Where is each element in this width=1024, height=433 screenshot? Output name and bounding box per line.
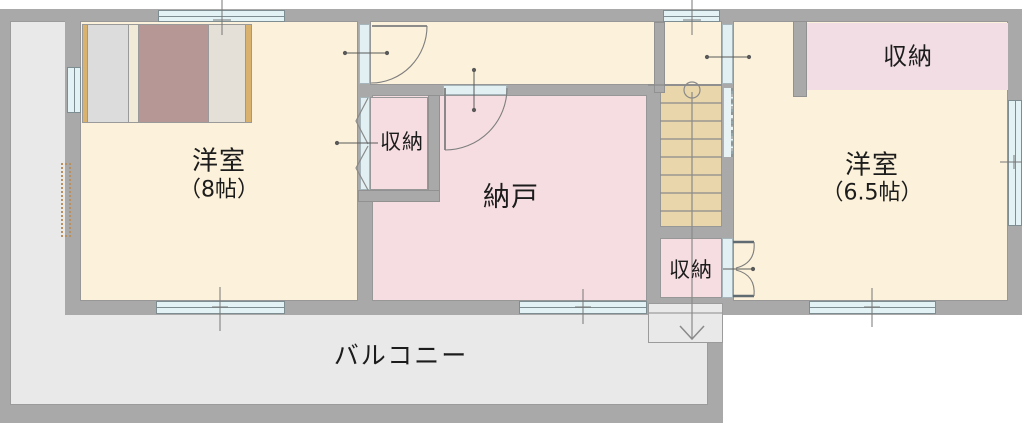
hallway-floor	[370, 21, 722, 85]
window-bottom-left	[156, 301, 285, 314]
bedroom-left-label: 洋室	[192, 147, 246, 176]
bed-foot-area	[208, 24, 246, 123]
bedroom-left-door-opening	[359, 24, 370, 84]
window-bottom-storeroom	[519, 301, 647, 314]
bedroom-right-size: （6.5帖）	[822, 182, 923, 207]
stairwell-rail-strip	[723, 88, 733, 157]
closet-right-wall-stub	[793, 21, 807, 97]
window-top-middle	[663, 10, 720, 22]
bedroom-left-size: （8帖）	[179, 179, 259, 204]
bedroom-right-door-opening	[722, 24, 733, 84]
storeroom-door-opening	[443, 85, 507, 95]
stairs-floor	[660, 85, 722, 227]
hallway-wall-stub	[654, 22, 665, 93]
bedroom-right-label: 洋室	[845, 151, 899, 180]
stair-landing-niche	[648, 303, 723, 343]
closet-left-door-opening	[360, 97, 370, 190]
bed-pillow-area	[87, 24, 129, 123]
closet-left-bottom-wall	[358, 190, 440, 202]
bed-frame-right	[245, 24, 252, 123]
closet-left-label: 収納	[380, 131, 424, 155]
closet-under-stairs-label: 収納	[669, 259, 713, 283]
closet-left-right-wall	[428, 95, 440, 202]
balcony-fixture-dotted	[61, 163, 71, 237]
window-top-left	[158, 10, 285, 22]
bed-blanket	[138, 24, 209, 123]
floor-plan: 洋室 （8帖） 収納 納戸 収納 洋室 （6.5帖） 収納 バルコニー	[0, 0, 1024, 433]
closet-under-stairs-door-opening	[722, 238, 733, 298]
window-right-wall	[1008, 100, 1022, 226]
window-bottom-right	[809, 301, 936, 314]
storeroom-label: 納戸	[483, 183, 539, 213]
window-left-wall	[67, 67, 81, 113]
bed	[82, 24, 252, 123]
closet-right-label: 収納	[883, 44, 933, 71]
balcony-label: バルコニー	[334, 342, 469, 370]
